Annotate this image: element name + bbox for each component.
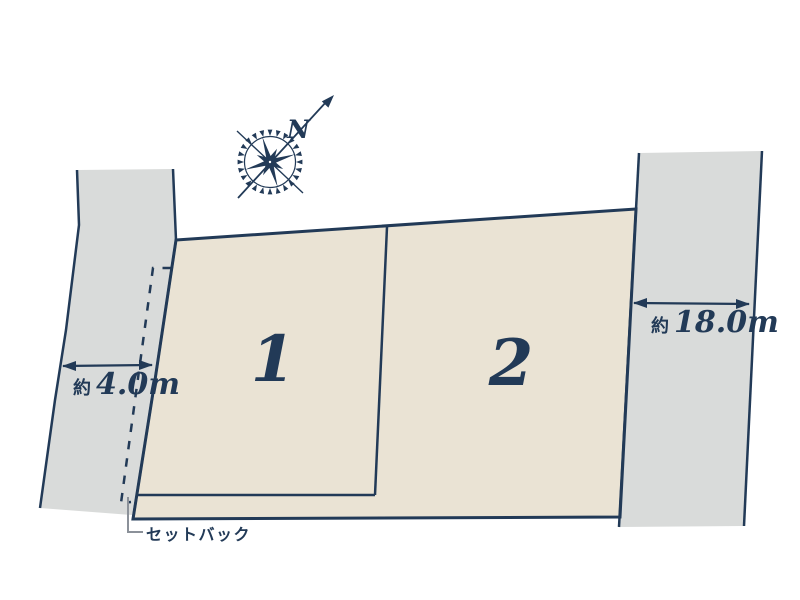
compass-hub-center [269, 161, 271, 163]
left-road-width-prefix: 約 [73, 374, 92, 400]
right-road-width-value: 18.0m [674, 308, 779, 338]
right-road-width-label: 約 18.0m [651, 308, 779, 338]
setback-label: セットバック [146, 521, 251, 545]
compass-rose-icon [237, 95, 334, 198]
left-road-width-value: 4.0m [96, 370, 180, 400]
left-road-width-label: 約 4.0m [73, 370, 180, 400]
plot-plan-diagram [0, 0, 800, 600]
north-label: N [287, 117, 310, 142]
lot-1-number: 1 [243, 328, 303, 392]
plot-plan-page: 1 2 約 4.0m 約 18.0m セットバック N [0, 0, 800, 600]
lot-2-number: 2 [481, 332, 541, 396]
right-road-width-prefix: 約 [651, 312, 670, 338]
north-arrow-shaft [238, 101, 327, 198]
